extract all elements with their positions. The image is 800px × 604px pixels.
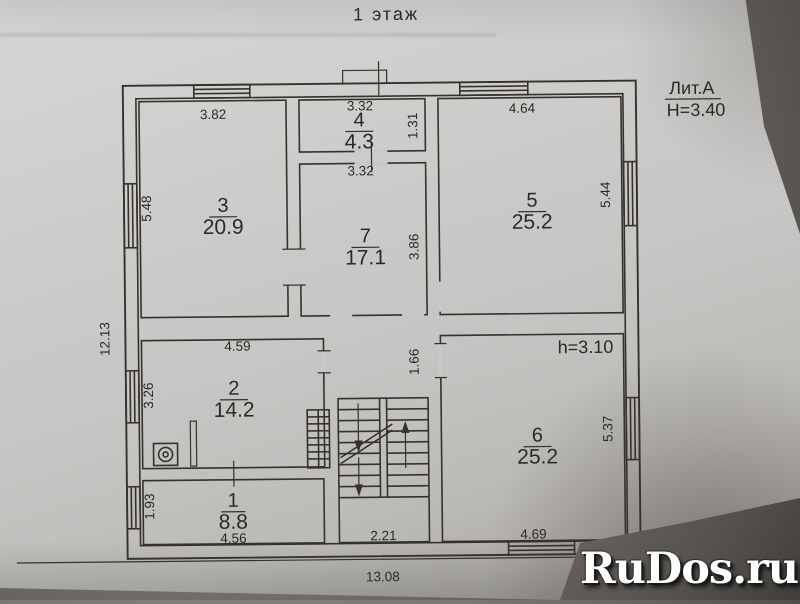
room-5-area: 25.2 [512, 210, 553, 233]
partition-wall [190, 421, 196, 466]
dim-room3-width: 3.82 [200, 107, 226, 122]
plan-annotations: Лит.А H=3.40 h=3.10 [555, 78, 728, 358]
dim-room2-width: 4.59 [224, 339, 250, 354]
watermark: RuDos.ru [580, 544, 798, 594]
dim-room6-depth: 5.37 [600, 416, 615, 442]
window-symbol [124, 184, 138, 248]
dim-room7-width: 3.32 [347, 163, 373, 178]
dim-room1-depth: 1.93 [142, 493, 157, 519]
stair-up-arrow [401, 421, 409, 468]
dimension-labels: 3.82 3.32 4.64 3.32 4.59 4.56 2.21 4.69 … [95, 96, 617, 587]
photo-background: 1 этаж [0, 0, 800, 600]
floor-plan: 1 этаж [0, 0, 800, 604]
dim-room5-depth: 5.44 [598, 181, 613, 208]
room-6-area: 25.2 [517, 445, 558, 468]
floor-title: 1 этаж [353, 4, 419, 25]
window-symbol [127, 487, 140, 529]
window-symbol [126, 371, 140, 423]
room-2-area: 14.2 [214, 399, 255, 422]
dim-room4-width: 3.32 [347, 98, 373, 113]
stair-down-arrow [355, 457, 363, 496]
floor-plan-drawing: 1 этаж [0, 0, 800, 604]
dim-room5-width: 4.64 [509, 101, 536, 116]
dim-room7-depth: 3.86 [406, 234, 421, 260]
window-symbol [509, 541, 575, 555]
ceiling-height-label: h=3.10 [558, 337, 614, 358]
window-symbol [460, 82, 528, 96]
room-5-number: 5 [526, 190, 537, 212]
window-symbol [624, 162, 638, 226]
dim-hall-opening: 1.66 [407, 349, 422, 375]
chimney-block [307, 410, 330, 468]
paper-sheet: 1 этаж [0, 0, 800, 600]
roof-projection [343, 70, 387, 83]
room-4-area: 4.3 [345, 130, 374, 153]
dim-room6-width: 4.69 [520, 526, 546, 541]
room-3-area: 20.9 [203, 216, 244, 239]
boiler-symbol [153, 443, 177, 465]
room-7-number: 7 [360, 225, 371, 247]
room-3-number: 3 [217, 195, 228, 217]
window-symbol [626, 398, 640, 460]
liter-label: Лит.А [669, 78, 714, 98]
stairs [338, 398, 429, 498]
dim-room3-depth: 5.48 [139, 195, 154, 221]
dim-room4-depth: 1.31 [405, 113, 420, 139]
dim-room1-width: 4.56 [220, 531, 246, 546]
dim-total-width: 13.08 [366, 569, 400, 584]
room-7-area: 17.1 [345, 246, 386, 269]
room-1-number: 1 [227, 490, 238, 512]
building-height-label: H=3.40 [667, 100, 726, 121]
dim-room2-depth: 3.26 [141, 382, 156, 408]
room-2-number: 2 [228, 378, 239, 400]
dim-total-depth: 12.13 [97, 322, 112, 356]
room-3-outline [139, 100, 288, 318]
window-symbol [194, 85, 250, 99]
stair-break-line [340, 430, 392, 464]
dim-stairs-width: 2.21 [370, 528, 396, 543]
room-6-number: 6 [532, 425, 543, 447]
